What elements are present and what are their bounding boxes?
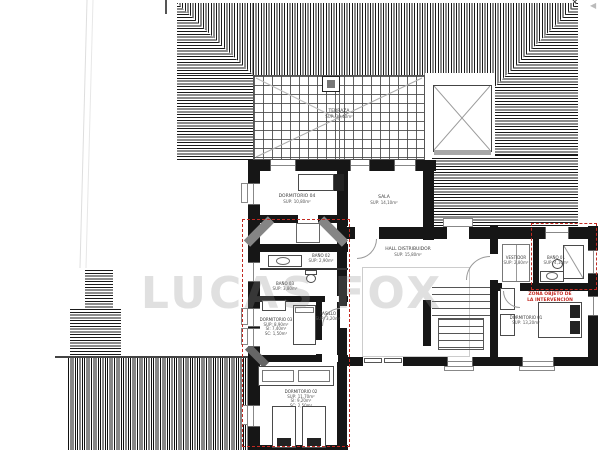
stair-flight-lower (438, 318, 484, 350)
pillow (570, 305, 580, 318)
room-area: SUP: 10,80m² (268, 199, 326, 204)
wall-segment (490, 226, 498, 366)
pergola-post-line (339, 92, 340, 160)
window-sill (519, 366, 555, 371)
survey-line (165, 0, 167, 14)
window (248, 183, 260, 205)
room-label-sala: SALA SUP: 14,10m² (362, 195, 406, 205)
edge-arrow-icon: ◀ (590, 1, 596, 10)
bed (298, 174, 334, 191)
boundary-line (85, 0, 93, 268)
wall-segment (337, 357, 498, 366)
floor-plan-canvas: ✕ ◀ (0, 0, 600, 450)
roof-hatch (177, 75, 253, 160)
room-label-dorm04: DORMITORIO 04 SUP: 10,80m² (268, 194, 326, 204)
window (350, 160, 370, 171)
door-leaf (364, 358, 382, 363)
skylight (433, 85, 492, 152)
window-sill (241, 183, 248, 203)
room-label-terraza: TERRAZA SUP: 30,40m² (309, 109, 369, 119)
roof-hatch (432, 155, 578, 227)
porch-step (443, 218, 473, 227)
intervention-note-line1: ZONA OBJETO DE (526, 292, 574, 298)
room-label-dorm01: DORMITORIO 01 SUP: 13,20m² (502, 315, 550, 325)
intervention-note: ZONA OBJETO DE LA INTERVENCIÓN (526, 292, 574, 303)
door-opening (355, 227, 379, 239)
skylight-x-icon (434, 86, 490, 150)
door-opening (447, 227, 469, 239)
room-label-vestidor: VESTIDOR SUP: 2,80m² (501, 255, 531, 265)
pillow (570, 321, 580, 334)
door-swing (357, 239, 377, 259)
window (270, 160, 296, 171)
room-area: SUP: 2,80m² (501, 260, 531, 265)
room-label-hall: HALL DISTRIBUIDOR SUP: 15,80m² (376, 247, 440, 257)
window (588, 296, 598, 316)
window (522, 357, 554, 366)
roof-hatch (253, 3, 430, 75)
room-area: SUP: 30,40m² (309, 114, 369, 119)
intervention-note-line2: LA INTERVENCIÓN (526, 298, 574, 304)
door-opening (490, 254, 498, 280)
chimney-flue (327, 80, 335, 88)
window-sill (444, 366, 474, 371)
roof-hatch (68, 358, 248, 450)
nightstand (334, 174, 344, 191)
room-area: SUP: 15,80m² (376, 252, 440, 257)
intervention-zone-left (242, 219, 350, 447)
room-area: SUP: 14,10m² (362, 200, 406, 205)
roof-edge-line (55, 356, 250, 358)
intervention-zone-right (531, 223, 597, 290)
roof-gutter (434, 150, 491, 155)
door-leaf (384, 358, 402, 363)
window (447, 357, 473, 366)
room-area: SUP: 13,20m² (502, 320, 550, 325)
window (394, 160, 416, 171)
roof-hatch (85, 270, 113, 309)
